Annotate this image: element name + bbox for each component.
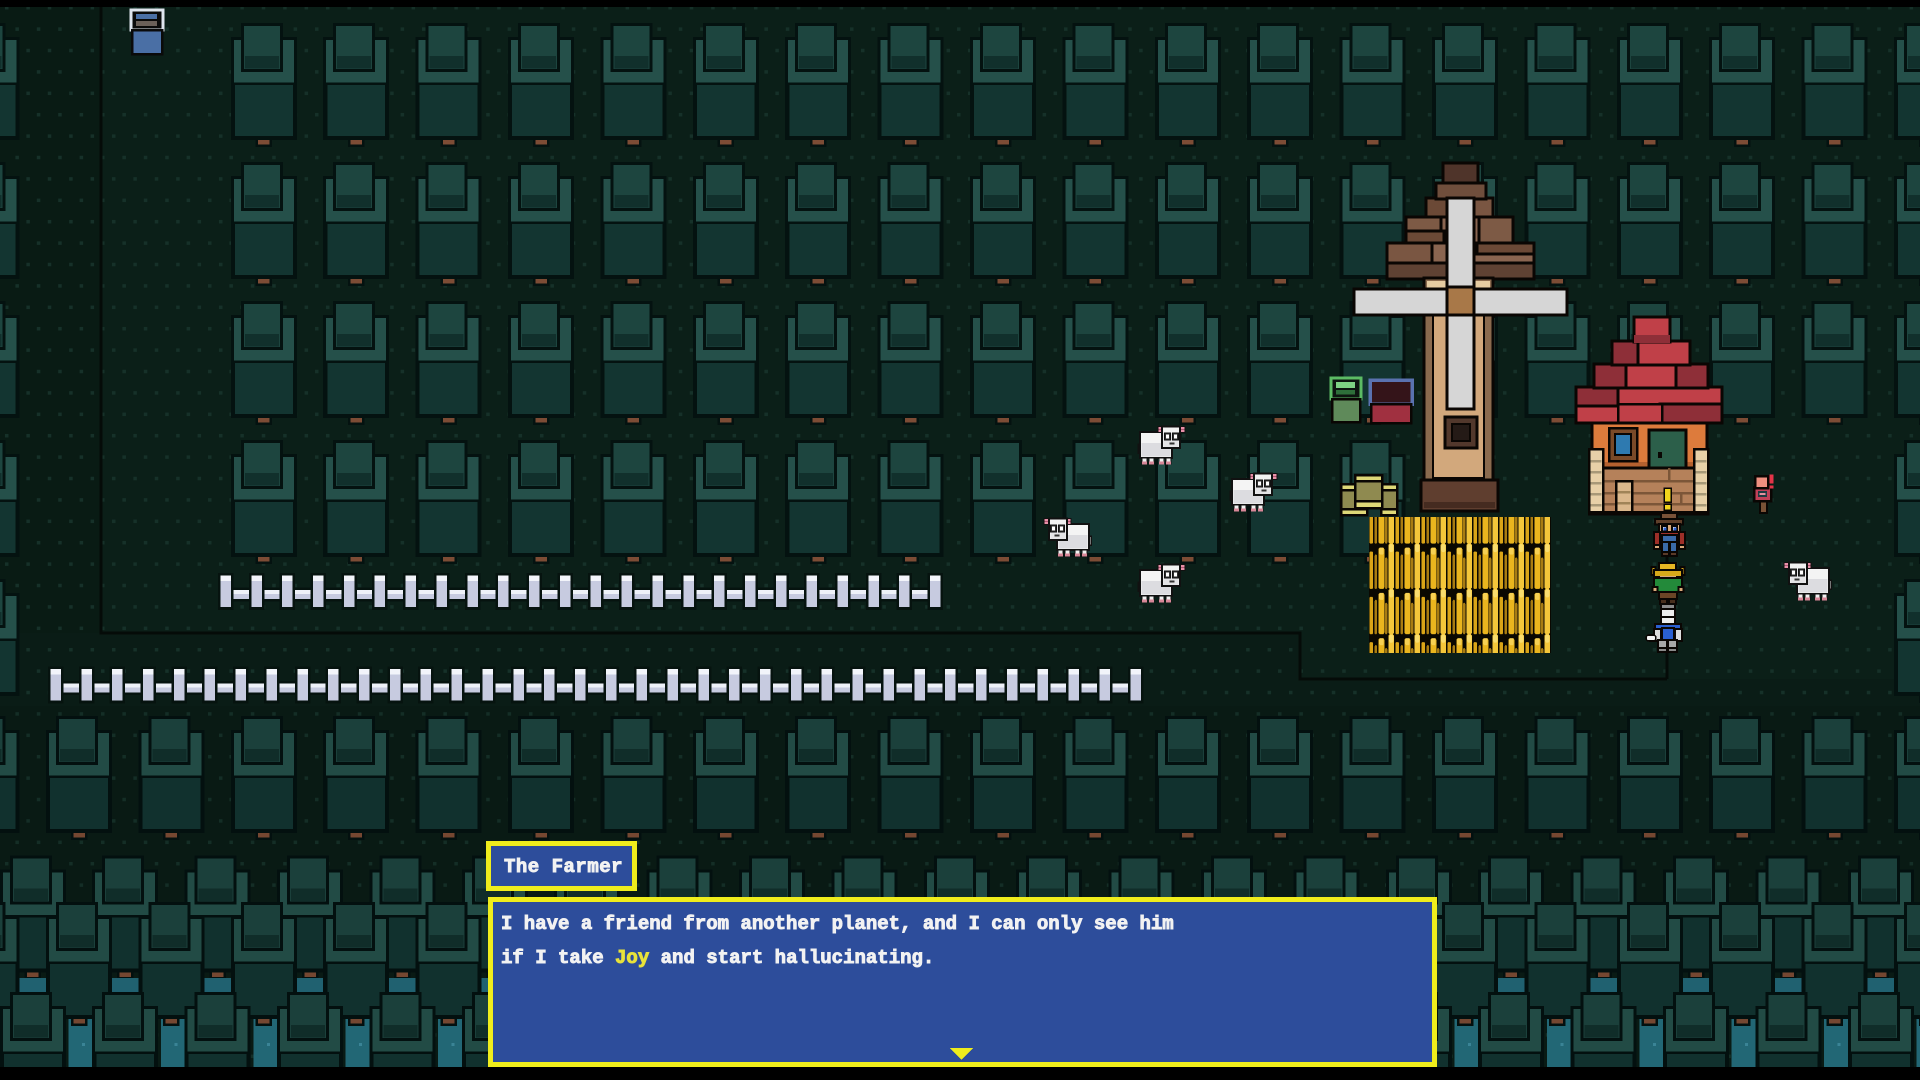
svg-text:if I take Joy and start halluc: if I take Joy and start hallucinating. <box>501 947 934 969</box>
svg-text:The Farmer: The Farmer <box>504 856 623 878</box>
svg-text:I have a friend from another p: I have a friend from another planet, and… <box>501 913 1174 935</box>
